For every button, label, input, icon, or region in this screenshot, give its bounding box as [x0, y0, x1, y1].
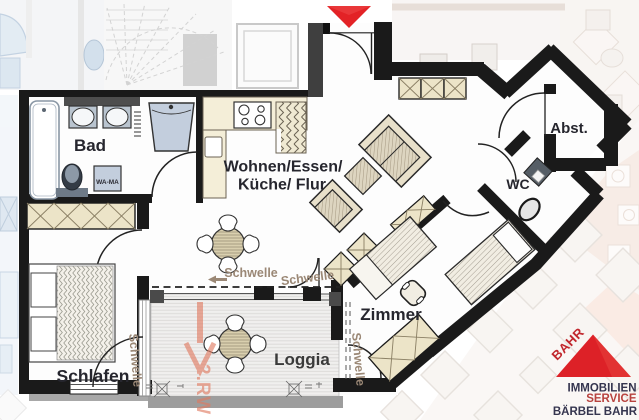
svg-text:BÄRBEL BAHR: BÄRBEL BAHR [553, 405, 638, 418]
svg-text:WC: WC [506, 176, 529, 192]
svg-text:Schwelle: Schwelle [224, 266, 278, 280]
svg-text:Küche/ Flur: Küche/ Flur [238, 177, 326, 194]
svg-text:Wohnen/Essen/: Wohnen/Essen/ [224, 159, 343, 176]
svg-text:WA-MA: WA-MA [96, 179, 119, 186]
svg-text:Zimmer: Zimmer [360, 305, 422, 324]
svg-text:Loggia: Loggia [274, 350, 330, 369]
svg-text:2.RW: 2.RW [192, 364, 213, 415]
svg-text:Bad: Bad [74, 136, 106, 155]
svg-text:SERVICE: SERVICE [586, 393, 637, 405]
svg-text:Abst.: Abst. [550, 120, 588, 137]
